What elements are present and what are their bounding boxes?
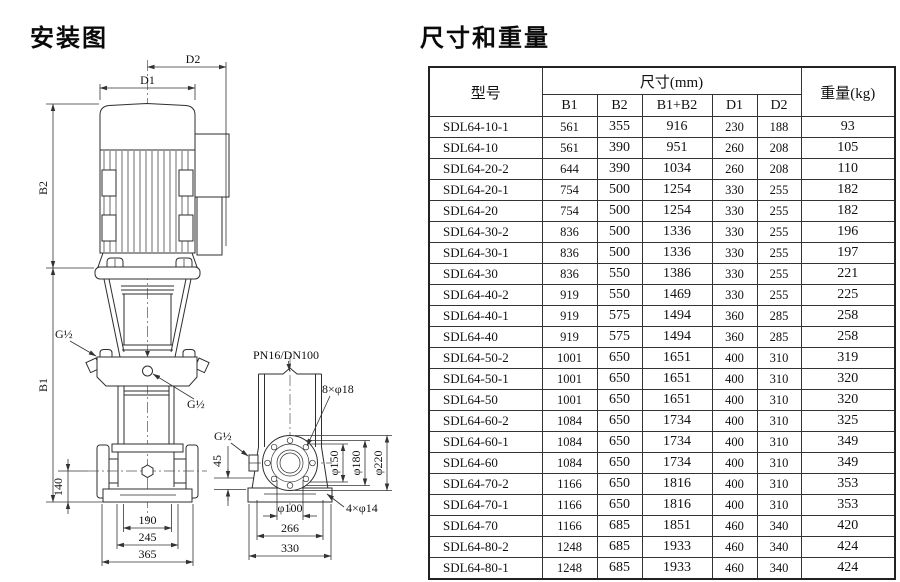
table-row: SDL64-50-2 1001 650 1651 400 310 319 [429, 348, 895, 369]
cell-model: SDL64-50 [429, 390, 542, 411]
cell-weight: 320 [801, 369, 895, 390]
cell-weight: 221 [801, 264, 895, 285]
cell-b1b2: 1734 [642, 432, 712, 453]
cell-b1: 919 [542, 306, 597, 327]
table-row: SDL64-20 754 500 1254 330 255 182 [429, 201, 895, 222]
cell-model: SDL64-70-2 [429, 474, 542, 495]
base-bolts-label: 4×φ14 [346, 501, 378, 515]
cell-d2: 188 [757, 117, 801, 138]
cell-b2: 650 [597, 495, 642, 516]
cell-weight: 353 [801, 474, 895, 495]
cell-model: SDL64-20-1 [429, 180, 542, 201]
cell-b1b2: 1336 [642, 243, 712, 264]
cell-b1b2: 1336 [642, 222, 712, 243]
cell-d1: 400 [712, 432, 757, 453]
cell-b2: 650 [597, 474, 642, 495]
dim-label-266: 266 [281, 521, 299, 535]
cell-weight: 325 [801, 411, 895, 432]
motor-stool-flange [95, 267, 200, 279]
table-row: SDL64-20-1 754 500 1254 330 255 182 [429, 180, 895, 201]
table-row: SDL64-40 919 575 1494 360 285 258 [429, 327, 895, 348]
cell-model: SDL64-60 [429, 453, 542, 474]
cell-b1b2: 1933 [642, 537, 712, 558]
cell-b1: 1001 [542, 390, 597, 411]
table-row: SDL64-30 836 550 1386 330 255 221 [429, 264, 895, 285]
cell-weight: 182 [801, 180, 895, 201]
cell-d2: 340 [757, 537, 801, 558]
cell-weight: 105 [801, 138, 895, 159]
cell-b2: 500 [597, 201, 642, 222]
dim-label-365: 365 [139, 547, 157, 561]
cell-model: SDL64-70 [429, 516, 542, 537]
table-body: SDL64-10-1 561 355 916 230 188 93 SDL64-… [429, 117, 895, 580]
cell-d2: 255 [757, 222, 801, 243]
cell-weight: 353 [801, 495, 895, 516]
cell-b1: 1248 [542, 558, 597, 580]
cell-b2: 550 [597, 285, 642, 306]
cell-weight: 349 [801, 432, 895, 453]
cell-weight: 349 [801, 453, 895, 474]
cell-model: SDL64-40 [429, 327, 542, 348]
cell-d2: 310 [757, 390, 801, 411]
cell-b1: 1084 [542, 432, 597, 453]
dim-label-d2: D2 [186, 52, 201, 66]
cell-model: SDL64-20 [429, 201, 542, 222]
cell-d1: 400 [712, 369, 757, 390]
port-label-g12-top: G½ [55, 327, 73, 341]
cell-d1: 330 [712, 222, 757, 243]
cell-model: SDL64-10-1 [429, 117, 542, 138]
cell-model: SDL64-70-1 [429, 495, 542, 516]
cell-model: SDL64-40-1 [429, 306, 542, 327]
cell-d1: 260 [712, 159, 757, 180]
drain-plug [142, 465, 153, 478]
cell-weight: 424 [801, 558, 895, 580]
cell-d1: 330 [712, 264, 757, 285]
cell-b1: 561 [542, 117, 597, 138]
dim-label-245: 245 [139, 530, 157, 544]
cell-d1: 400 [712, 495, 757, 516]
cell-model: SDL64-30 [429, 264, 542, 285]
flange-bolts-label: 8×φ18 [322, 382, 354, 396]
cell-b1: 561 [542, 138, 597, 159]
cell-d2: 255 [757, 201, 801, 222]
cell-d2: 310 [757, 411, 801, 432]
col-header-b2: B2 [597, 95, 642, 117]
cell-d1: 460 [712, 537, 757, 558]
cell-d1: 460 [712, 516, 757, 537]
cell-b1: 836 [542, 222, 597, 243]
cell-weight: 93 [801, 117, 895, 138]
table-row: SDL64-80-2 1248 685 1933 460 340 424 [429, 537, 895, 558]
cell-b1b2: 1254 [642, 180, 712, 201]
cell-d2: 310 [757, 369, 801, 390]
cell-b1: 1166 [542, 474, 597, 495]
cell-b1b2: 1494 [642, 306, 712, 327]
dim-label-b2: B2 [36, 181, 50, 195]
cell-d2: 208 [757, 159, 801, 180]
cell-b2: 390 [597, 159, 642, 180]
cell-b1b2: 1651 [642, 369, 712, 390]
cell-d1: 400 [712, 390, 757, 411]
cell-weight: 197 [801, 243, 895, 264]
cell-weight: 110 [801, 159, 895, 180]
cell-d1: 400 [712, 453, 757, 474]
terminal-box [195, 134, 229, 197]
pump-elevation-view [86, 60, 229, 520]
dim-label-phi220: φ220 [371, 451, 385, 476]
cell-b1: 836 [542, 243, 597, 264]
cell-b1: 1084 [542, 411, 597, 432]
cell-b1b2: 1816 [642, 474, 712, 495]
table-row: SDL64-40-1 919 575 1494 360 285 258 [429, 306, 895, 327]
cell-b1: 919 [542, 327, 597, 348]
dim-label-140: 140 [51, 478, 65, 496]
cell-b1b2: 1651 [642, 390, 712, 411]
cell-b2: 355 [597, 117, 642, 138]
cell-b1b2: 951 [642, 138, 712, 159]
cell-b2: 575 [597, 306, 642, 327]
cell-weight: 320 [801, 390, 895, 411]
table-row: SDL64-20-2 644 390 1034 260 208 110 [429, 159, 895, 180]
col-header-weight: 重量(kg) [801, 67, 895, 117]
cell-b1: 1084 [542, 453, 597, 474]
cell-b1b2: 1494 [642, 327, 712, 348]
cell-b2: 650 [597, 390, 642, 411]
cell-d1: 330 [712, 243, 757, 264]
col-header-b1b2: B1+B2 [642, 95, 712, 117]
cell-d1: 360 [712, 306, 757, 327]
table-row: SDL64-30-1 836 500 1336 330 255 197 [429, 243, 895, 264]
cell-d2: 310 [757, 453, 801, 474]
cell-b1: 1001 [542, 348, 597, 369]
col-header-d1: D1 [712, 95, 757, 117]
cell-model: SDL64-10 [429, 138, 542, 159]
cell-b1b2: 1034 [642, 159, 712, 180]
cell-b2: 390 [597, 138, 642, 159]
cell-d2: 208 [757, 138, 801, 159]
table-row: SDL64-70 1166 685 1851 460 340 420 [429, 516, 895, 537]
cell-b1: 1166 [542, 495, 597, 516]
flange-spec-label: PN16/DN100 [253, 348, 319, 362]
cell-model: SDL64-60-1 [429, 432, 542, 453]
cell-b1b2: 1254 [642, 201, 712, 222]
gauge-port [143, 366, 153, 376]
cell-d2: 255 [757, 285, 801, 306]
cell-b1b2: 1816 [642, 495, 712, 516]
cell-b1b2: 1651 [642, 348, 712, 369]
cell-d1: 330 [712, 285, 757, 306]
cell-weight: 424 [801, 537, 895, 558]
cell-d2: 310 [757, 432, 801, 453]
cell-weight: 420 [801, 516, 895, 537]
cell-weight: 319 [801, 348, 895, 369]
table-header-row-1: 型号 尺寸(mm) 重量(kg) [429, 67, 895, 95]
cell-b1b2: 1933 [642, 558, 712, 580]
cell-b1: 1166 [542, 516, 597, 537]
cell-b1: 754 [542, 180, 597, 201]
cell-b1b2: 1469 [642, 285, 712, 306]
table-row: SDL64-70-1 1166 650 1816 400 310 353 [429, 495, 895, 516]
cell-b1: 1248 [542, 537, 597, 558]
cell-d1: 400 [712, 411, 757, 432]
table-row: SDL64-60-2 1084 650 1734 400 310 325 [429, 411, 895, 432]
cell-b2: 685 [597, 516, 642, 537]
col-header-b1: B1 [542, 95, 597, 117]
table-row: SDL64-30-2 836 500 1336 330 255 196 [429, 222, 895, 243]
dim-label-phi180: φ180 [349, 451, 363, 476]
col-header-size-group: 尺寸(mm) [542, 67, 801, 95]
cell-b2: 500 [597, 180, 642, 201]
table-row: SDL64-50 1001 650 1651 400 310 320 [429, 390, 895, 411]
cell-model: SDL64-30-1 [429, 243, 542, 264]
cell-weight: 258 [801, 327, 895, 348]
table-row: SDL64-40-2 919 550 1469 330 255 225 [429, 285, 895, 306]
table-row: SDL64-60 1084 650 1734 400 310 349 [429, 453, 895, 474]
cell-b2: 650 [597, 369, 642, 390]
cell-model: SDL64-40-2 [429, 285, 542, 306]
table-row: SDL64-60-1 1084 650 1734 400 310 349 [429, 432, 895, 453]
cell-weight: 196 [801, 222, 895, 243]
cell-d2: 310 [757, 474, 801, 495]
cell-b2: 650 [597, 453, 642, 474]
cell-d2: 340 [757, 558, 801, 580]
table-row: SDL64-10-1 561 355 916 230 188 93 [429, 117, 895, 138]
dim-label-330: 330 [281, 541, 299, 555]
table-row: SDL64-70-2 1166 650 1816 400 310 353 [429, 474, 895, 495]
cell-d2: 285 [757, 306, 801, 327]
cell-b2: 500 [597, 243, 642, 264]
cell-weight: 225 [801, 285, 895, 306]
dim-label-45: 45 [210, 455, 224, 467]
table-row: SDL64-80-1 1248 685 1933 460 340 424 [429, 558, 895, 580]
cell-b2: 550 [597, 264, 642, 285]
cell-d2: 310 [757, 348, 801, 369]
cell-weight: 182 [801, 201, 895, 222]
cell-b1b2: 1851 [642, 516, 712, 537]
cell-model: SDL64-20-2 [429, 159, 542, 180]
spec-sheet-page: 安装图 尺寸和重量 [0, 0, 900, 582]
pump-base [103, 489, 192, 502]
port-label-g12-mid: G½ [187, 397, 205, 411]
cell-b2: 685 [597, 537, 642, 558]
cell-weight: 258 [801, 306, 895, 327]
installation-diagram: D1 D2 B2 B1 140 190 [0, 0, 430, 582]
cell-d2: 285 [757, 327, 801, 348]
dimensions-weight-title: 尺寸和重量 [420, 18, 550, 53]
dim-label-d1: D1 [140, 73, 155, 87]
cell-d1: 230 [712, 117, 757, 138]
cell-d1: 330 [712, 180, 757, 201]
cell-d1: 360 [712, 327, 757, 348]
cell-b2: 685 [597, 558, 642, 580]
cell-b2: 500 [597, 222, 642, 243]
cell-d2: 255 [757, 180, 801, 201]
dim-label-b1: B1 [36, 378, 50, 392]
cell-d2: 255 [757, 264, 801, 285]
cell-model: SDL64-30-2 [429, 222, 542, 243]
cell-d2: 340 [757, 516, 801, 537]
dimensions-weight-table: 型号 尺寸(mm) 重量(kg) B1 B2 B1+B2 D1 D2 SDL64… [428, 66, 896, 580]
cell-b2: 650 [597, 432, 642, 453]
cell-d1: 400 [712, 348, 757, 369]
cell-model: SDL64-50-1 [429, 369, 542, 390]
cell-b1: 836 [542, 264, 597, 285]
cell-b2: 650 [597, 411, 642, 432]
col-header-d2: D2 [757, 95, 801, 117]
cell-b1b2: 1734 [642, 411, 712, 432]
cell-model: SDL64-50-2 [429, 348, 542, 369]
cell-b1: 1001 [542, 369, 597, 390]
cell-b1b2: 1386 [642, 264, 712, 285]
col-header-model: 型号 [429, 67, 542, 117]
cell-d1: 400 [712, 474, 757, 495]
cell-b2: 575 [597, 327, 642, 348]
dim-label-phi150: φ150 [327, 451, 341, 476]
cell-b2: 650 [597, 348, 642, 369]
flange-detail-view [248, 356, 332, 512]
cell-b1b2: 1734 [642, 453, 712, 474]
cell-d1: 460 [712, 558, 757, 580]
cell-b1: 919 [542, 285, 597, 306]
motor-fan-cover [100, 104, 195, 151]
table-row: SDL64-10 561 390 951 260 208 105 [429, 138, 895, 159]
cell-b1: 754 [542, 201, 597, 222]
port-label-g12-side: G½ [214, 429, 232, 443]
dim-label-phi100: φ100 [278, 501, 303, 515]
table-row: SDL64-50-1 1001 650 1651 400 310 320 [429, 369, 895, 390]
cell-b1b2: 916 [642, 117, 712, 138]
cell-model: SDL64-80-1 [429, 558, 542, 580]
cell-d2: 255 [757, 243, 801, 264]
cell-b1: 644 [542, 159, 597, 180]
cell-d2: 310 [757, 495, 801, 516]
cell-d1: 260 [712, 138, 757, 159]
cell-model: SDL64-80-2 [429, 537, 542, 558]
cell-model: SDL64-60-2 [429, 411, 542, 432]
dim-label-190: 190 [139, 513, 157, 527]
cell-d1: 330 [712, 201, 757, 222]
